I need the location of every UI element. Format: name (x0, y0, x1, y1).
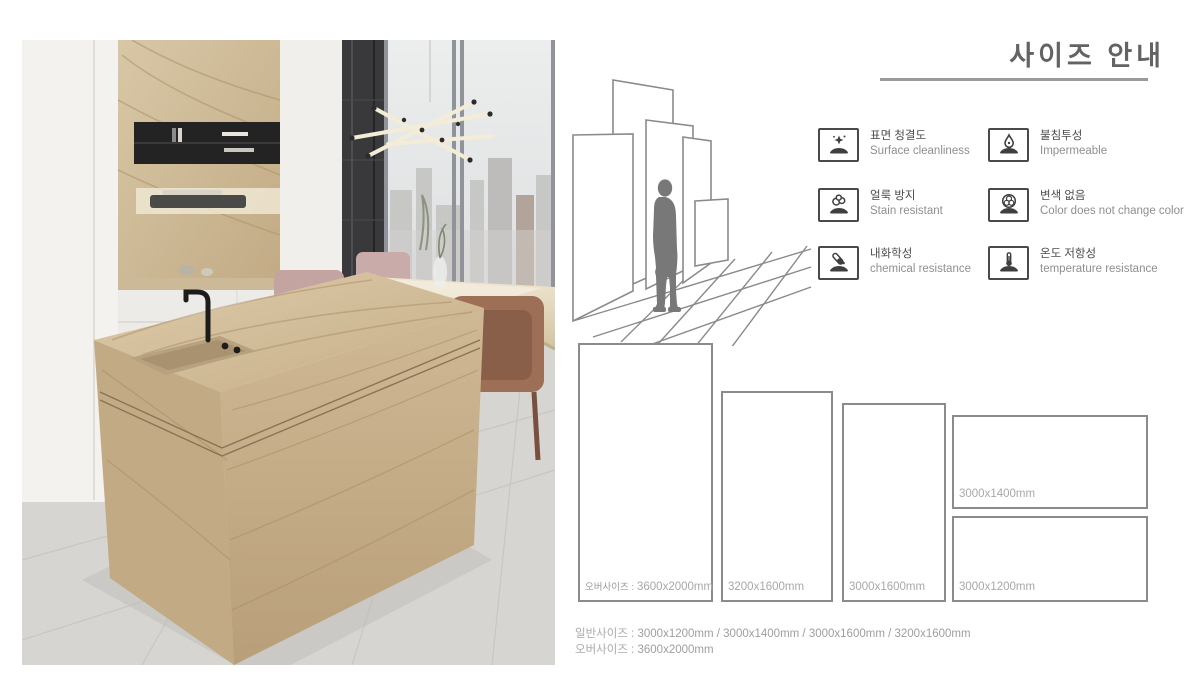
slab-size-3000x1600: 3000x1600mm (842, 403, 946, 602)
thermometer-icon (994, 250, 1024, 276)
oversize-label: 오버사이즈 : (575, 642, 634, 658)
stain-blobs-icon (824, 192, 854, 218)
general-sizes-label: 일반사이즈 : (575, 626, 634, 642)
slab-size-label: 오버사이즈 :3600x2000mm (585, 579, 713, 593)
feature-temperature-resistance: 온도 저항성 temperature resistance (988, 246, 1158, 280)
icon-box (818, 188, 859, 222)
page-title: 사이즈 안내 (820, 34, 1165, 73)
kitchen-photo-illustration (22, 40, 555, 665)
size-summary: 일반사이즈 : 3000x1200mm / 3000x1400mm / 3000… (575, 626, 971, 658)
slab-size-3000x1200: 3000x1200mm (952, 516, 1148, 602)
feature-ko-label: 변색 없음 (1040, 189, 1184, 204)
feature-ko-label: 내화학성 (870, 247, 971, 262)
feature-en-label: chemical resistance (870, 262, 971, 277)
icon-box (818, 246, 859, 280)
chemical-tube-icon (824, 250, 854, 276)
icon-box (988, 188, 1029, 222)
sparkle-surface-icon (824, 132, 854, 158)
color-circles-icon (994, 192, 1024, 218)
feature-ko-label: 온도 저항성 (1040, 247, 1158, 262)
slab-size-3600x2000: 오버사이즈 :3600x2000mm (578, 343, 713, 602)
feature-ko-label: 불침투성 (1040, 129, 1107, 144)
oversize-value: 3600x2000mm (638, 644, 714, 656)
slab-scale-diagram (563, 56, 813, 346)
feature-ko-label: 표면 청결도 (870, 129, 970, 144)
water-drop-icon (994, 132, 1024, 158)
icon-box (988, 128, 1029, 162)
general-sizes-line: 일반사이즈 : 3000x1200mm / 3000x1400mm / 3000… (575, 626, 971, 642)
icon-box (988, 246, 1029, 280)
feature-chemical-resistance: 내화학성 chemical resistance (818, 246, 988, 280)
feature-en-label: Impermeable (1040, 144, 1107, 159)
feature-surface-cleanliness: 표면 청결도 Surface cleanliness (818, 128, 988, 162)
feature-en-label: Surface cleanliness (870, 144, 970, 159)
oversize-prefix: 오버사이즈 : (585, 582, 634, 593)
slab-size-3200x1600: 3200x1600mm (721, 391, 833, 602)
slab-scale-illustration (563, 56, 813, 346)
oversize-line: 오버사이즈 : 3600x2000mm (575, 642, 971, 658)
general-sizes-value: 3000x1200mm / 3000x1400mm / 3000x1600mm … (638, 628, 971, 640)
slab-size-label: 3000x1600mm (849, 581, 925, 593)
feature-en-label: temperature resistance (1040, 262, 1158, 277)
slab-size-3000x1400: 3000x1400mm (952, 415, 1148, 509)
icon-box (818, 128, 859, 162)
slab-size-label: 3000x1400mm (959, 488, 1035, 500)
feature-color-stability: 변색 없음 Color does not change color (988, 188, 1158, 222)
feature-en-label: Stain resistant (870, 204, 943, 219)
slab-size-label: 3200x1600mm (728, 581, 804, 593)
feature-en-label: Color does not change color (1040, 204, 1184, 219)
slab-size-label: 3000x1200mm (959, 581, 1035, 593)
feature-stain-resistant: 얼룩 방지 Stain resistant (818, 188, 988, 222)
feature-impermeable: 불침투성 Impermeable (988, 128, 1158, 162)
title-underline (880, 78, 1148, 81)
kitchen-photo (22, 40, 555, 665)
feature-ko-label: 얼룩 방지 (870, 189, 943, 204)
